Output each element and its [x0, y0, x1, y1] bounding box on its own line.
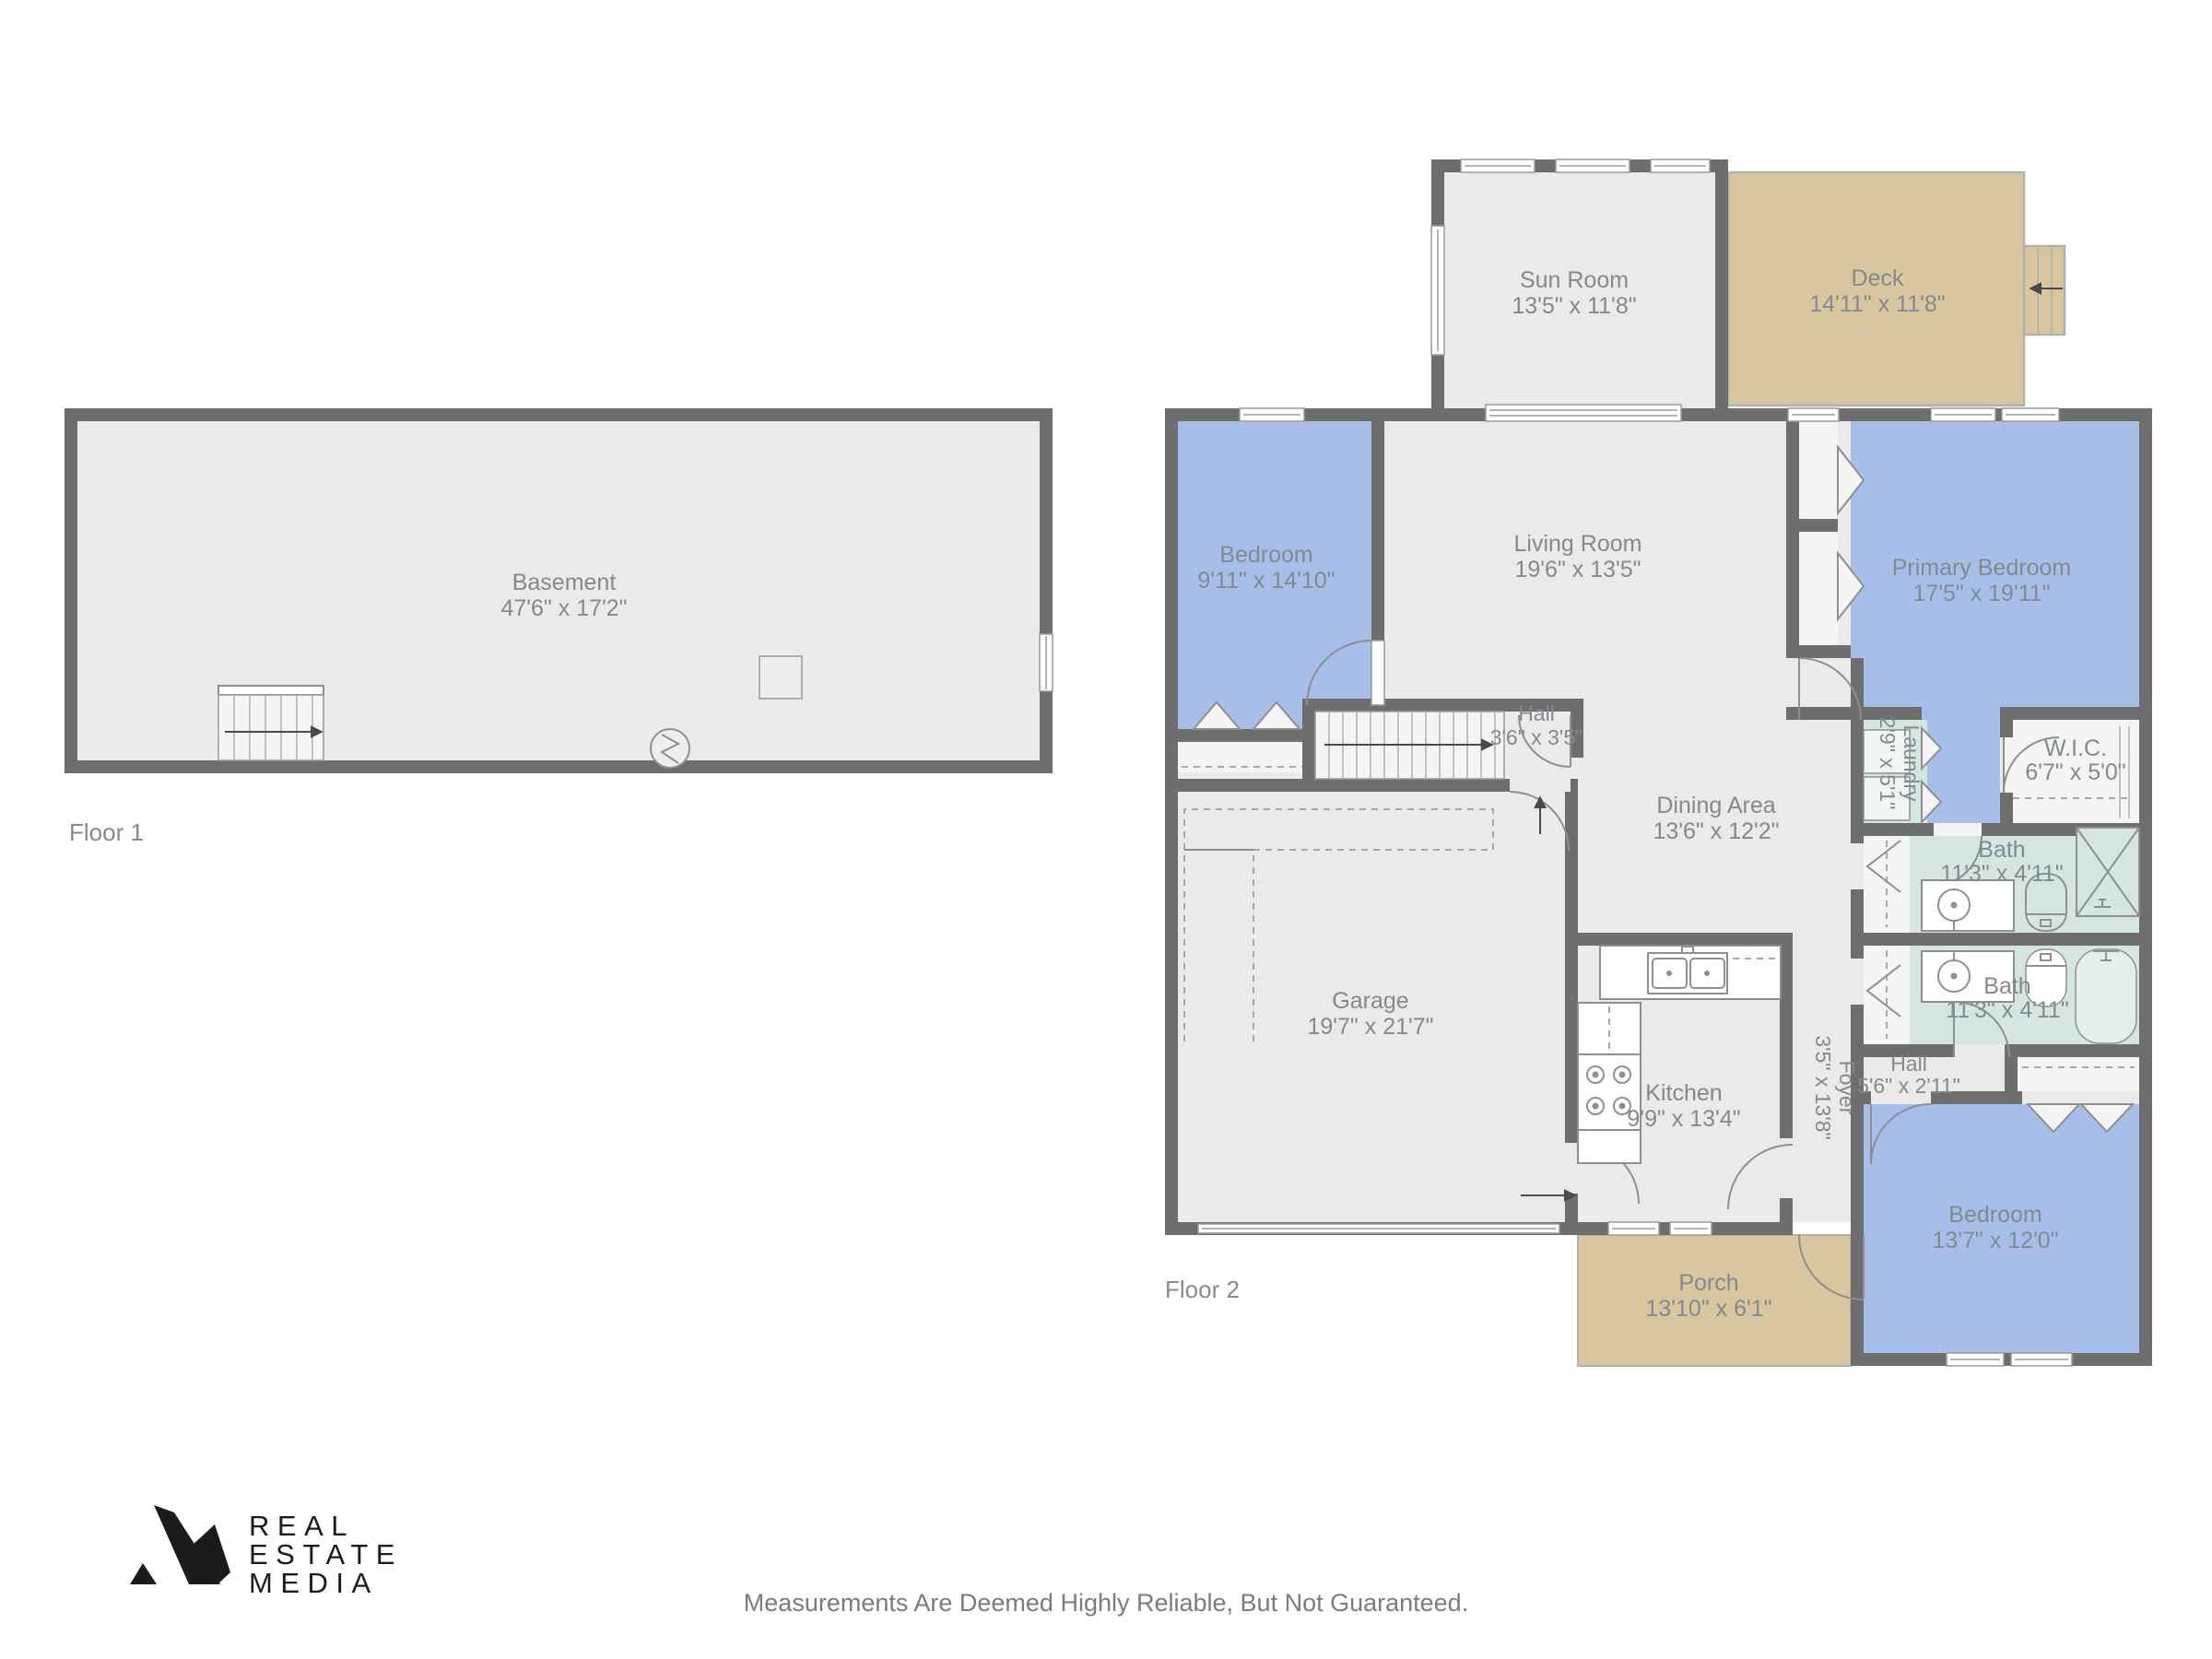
bath-upper-label: Bath: [1978, 837, 2025, 863]
sunroom-slider-opening: [1486, 405, 1681, 421]
hall-upper-dims: 3'6" x 3'5": [1490, 725, 1583, 749]
foyer-dims: 3'5" x 13'8": [1811, 1035, 1835, 1139]
hall-lower-label: Hall: [1890, 1052, 1927, 1076]
hall-lower-dims: 5'6" x 2'11": [1857, 1074, 1960, 1098]
porch-dims: 13'10" x 6'1": [1645, 1296, 1771, 1322]
bedroom-lower-dims: 13'7" x 12'0": [1932, 1228, 2058, 1253]
logo-line-3: MEDIA: [249, 1567, 379, 1599]
deck-dims: 14'11" x 11'8": [1809, 291, 1945, 317]
foyer-label: Foyer: [1835, 1061, 1859, 1115]
basement-dims: 47'6" x 17'2": [500, 595, 627, 621]
living-room-label: Living Room: [1514, 531, 1642, 557]
basement-window-icon: [1040, 634, 1053, 691]
garage-door-band: [1198, 1224, 1559, 1233]
wic-label: W.I.C.: [2044, 735, 2107, 761]
dining-area-label: Dining Area: [1656, 793, 1775, 818]
shower-icon: [2077, 828, 2139, 916]
floor2-plan: [1165, 159, 2152, 1366]
stairs-upper-icon: [1315, 712, 1504, 779]
primary-bedroom-dims: 17'5" x 19'11": [1912, 581, 2050, 606]
floorplan-svg: Basement 47'6" x 17'2" Floor 1 Sun Room …: [0, 0, 2212, 1659]
bath-threshold: [1934, 823, 1982, 836]
bedroom-upper-dims: 9'11" x 14'10": [1197, 568, 1335, 594]
vanity-sink-icon: [1922, 880, 2014, 931]
floor2-label: Floor 2: [1165, 1276, 1240, 1303]
kitchen-dims: 9'9" x 13'4": [1627, 1106, 1740, 1132]
bath-lower-label: Bath: [1983, 973, 2030, 999]
bath-lower-dims: 11'3" x 4'11": [1946, 997, 2068, 1023]
floorplan-page: Basement 47'6" x 17'2" Floor 1 Sun Room …: [0, 0, 2212, 1659]
real-estate-media-logo-icon: [130, 1505, 230, 1584]
disclaimer-text: Measurements Are Deemed Highly Reliable,…: [744, 1589, 1468, 1617]
logo-line-1: REAL: [249, 1510, 355, 1542]
logo-line-2: ESTATE: [249, 1538, 403, 1571]
bedroom-lower-label: Bedroom: [1948, 1202, 2041, 1228]
deck-label: Deck: [1852, 265, 1904, 291]
porch-label: Porch: [1678, 1270, 1738, 1296]
basement-label: Basement: [512, 570, 617, 595]
floor1-label: Floor 1: [69, 818, 144, 846]
bedroom-lower-closet: [2018, 1057, 2139, 1091]
primary-bedroom-label: Primary Bedroom: [1892, 555, 2072, 581]
basement-stairs-icon: [218, 686, 324, 760]
garage-dims: 19'7" x 21'7": [1307, 1014, 1433, 1040]
laundry-label: Laundry: [1900, 724, 1924, 802]
sunroom-top-windows: [1461, 159, 1710, 172]
garage-label: Garage: [1332, 988, 1408, 1014]
bedroom-upper-label: Bedroom: [1219, 542, 1312, 568]
bath-upper-dims: 11'3" x 4'11": [1940, 861, 2063, 887]
bathtub-icon: [2076, 949, 2136, 1043]
water-heater-icon: [759, 656, 802, 699]
dining-area-dims: 13'6" x 12'2": [1653, 818, 1779, 844]
kitchen-sink-icon: [1648, 947, 1727, 994]
bath-lower-closet: [1864, 946, 1910, 1044]
sunroom-left-window: [1431, 226, 1444, 355]
hall-upper-label: Hall: [1518, 701, 1555, 725]
kitchen-label: Kitchen: [1645, 1080, 1722, 1106]
wic-dims: 6'7" x 5'0": [2025, 759, 2125, 785]
sun-room-dims: 13'5" x 11'8": [1512, 293, 1636, 319]
primary-closet1: [1799, 421, 1838, 519]
bedroom-upper-door-leaf: [1371, 641, 1384, 705]
furnace-icon: [651, 729, 689, 768]
living-room-dims: 19'6" x 13'5": [1514, 557, 1641, 582]
logo: REAL ESTATE MEDIA: [130, 1505, 403, 1599]
laundry-dims: 2'9" x 5'1": [1876, 717, 1900, 810]
primary-closet2: [1799, 532, 1838, 645]
sun-room-label: Sun Room: [1520, 267, 1629, 293]
